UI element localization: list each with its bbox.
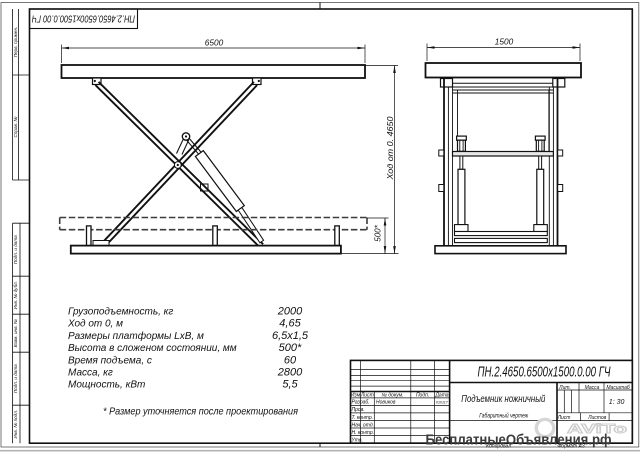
svg-text:Инв. № подл.: Инв. № подл. xyxy=(13,410,18,439)
svg-text:2000: 2000 xyxy=(277,306,303,318)
svg-text:Подп. и дата: Подп. и дата xyxy=(13,364,18,393)
svg-text:Грузоподъемность, кг: Грузоподъемность, кг xyxy=(68,307,173,318)
svg-text:Справ. №: Справ. № xyxy=(13,117,18,138)
svg-text:Перв. примен.: Перв. примен. xyxy=(13,27,18,58)
svg-text:Нач. отд.: Нач. отд. xyxy=(352,422,374,428)
svg-text:БесплатныеОбъявления.рф: БесплатныеОбъявления.рф xyxy=(426,433,612,449)
svg-text:6500: 6500 xyxy=(205,38,224,48)
svg-text:Т. контр.: Т. контр. xyxy=(352,415,374,421)
svg-text:4,65: 4,65 xyxy=(279,318,301,330)
svg-text:60: 60 xyxy=(284,354,297,366)
svg-text:010117: 010117 xyxy=(436,400,449,404)
svg-text:Лит.: Лит. xyxy=(558,385,571,391)
svg-text:Масштаб: Масштаб xyxy=(606,385,630,391)
svg-text:2800: 2800 xyxy=(277,367,303,379)
svg-text:Подъемник ножничный: Подъемник ножничный xyxy=(461,394,545,405)
svg-text:№ докум.: № докум. xyxy=(381,392,403,398)
svg-text:Высота в сложеном состоянии, м: Высота в сложеном состоянии, мм xyxy=(68,343,237,354)
svg-text:1500: 1500 xyxy=(495,37,514,47)
svg-text:Разраб.: Разраб. xyxy=(352,400,370,406)
svg-text:Масса: Масса xyxy=(585,385,600,391)
svg-text:Пров.: Пров. xyxy=(352,407,365,413)
svg-text:Новиков: Новиков xyxy=(376,400,396,406)
svg-text:5,5: 5,5 xyxy=(282,379,298,391)
svg-text:Масса, кг: Масса, кг xyxy=(68,368,113,379)
svg-text:Ход от 0. 4650: Ход от 0. 4650 xyxy=(386,116,395,181)
svg-text:Лист: Лист xyxy=(360,392,374,398)
svg-text:Инв. № дубл.: Инв. № дубл. xyxy=(13,281,18,309)
svg-text:Утв.: Утв. xyxy=(352,437,363,443)
svg-text:1: 30: 1: 30 xyxy=(609,399,625,406)
svg-text:500*: 500* xyxy=(374,224,383,241)
svg-text:Дата: Дата xyxy=(434,392,448,398)
svg-text:Подп. и дата: Подп. и дата xyxy=(13,235,18,264)
svg-text:Взам. инв. №: Взам. инв. № xyxy=(13,319,18,347)
svg-text:6,5х1,5: 6,5х1,5 xyxy=(272,330,309,342)
svg-text:Н. контр.: Н. контр. xyxy=(352,430,375,436)
svg-text:Изм: Изм xyxy=(351,392,361,398)
svg-text:Ход от 0, м: Ход от 0, м xyxy=(67,319,123,330)
svg-text:Габаритный чертеж: Габаритный чертеж xyxy=(479,413,529,420)
svg-text:Подп.: Подп. xyxy=(416,392,429,398)
svg-text:Время подъема, с: Время подъема, с xyxy=(68,355,152,366)
svg-text:Размеры платформы LхВ, м: Размеры платформы LхВ, м xyxy=(68,330,204,342)
svg-text:Мощность, кВт: Мощность, кВт xyxy=(68,380,145,391)
svg-text:* Размер уточняется после прое: * Размер уточняется после проектирования xyxy=(103,407,299,418)
svg-text:ПН.2.4650.6500х1500.0.00 ГЧ: ПН.2.4650.6500х1500.0.00 ГЧ xyxy=(32,12,135,23)
svg-text:ПН.2.4650.6500х1500.0.00 ГЧ: ПН.2.4650.6500х1500.0.00 ГЧ xyxy=(478,364,612,381)
svg-text:500*: 500* xyxy=(279,342,302,354)
